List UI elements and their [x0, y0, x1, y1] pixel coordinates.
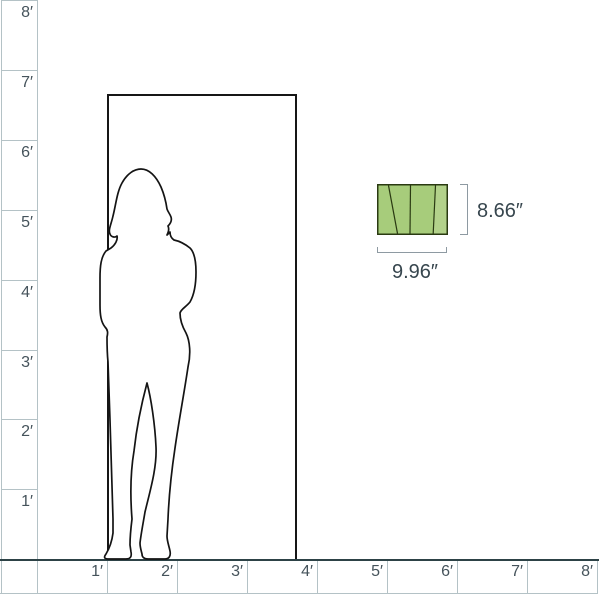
width-dimension-bracket: [377, 247, 447, 253]
size-comparison-diagram: 8′ 7′ 6′ 5′ 4′ 3′ 2′ 1′ 1′ 2′ 3′ 4′ 5′ 6…: [0, 0, 600, 600]
height-dimension-bracket: [460, 184, 468, 235]
standing-woman-silhouette: [0, 0, 600, 600]
height-dimension-label: 8.66″: [477, 200, 523, 223]
product-divider-line: [410, 186, 411, 234]
width-dimension-label: 9.96″: [380, 261, 450, 284]
person-outline: [100, 169, 196, 559]
product-panel-art: [377, 184, 448, 235]
